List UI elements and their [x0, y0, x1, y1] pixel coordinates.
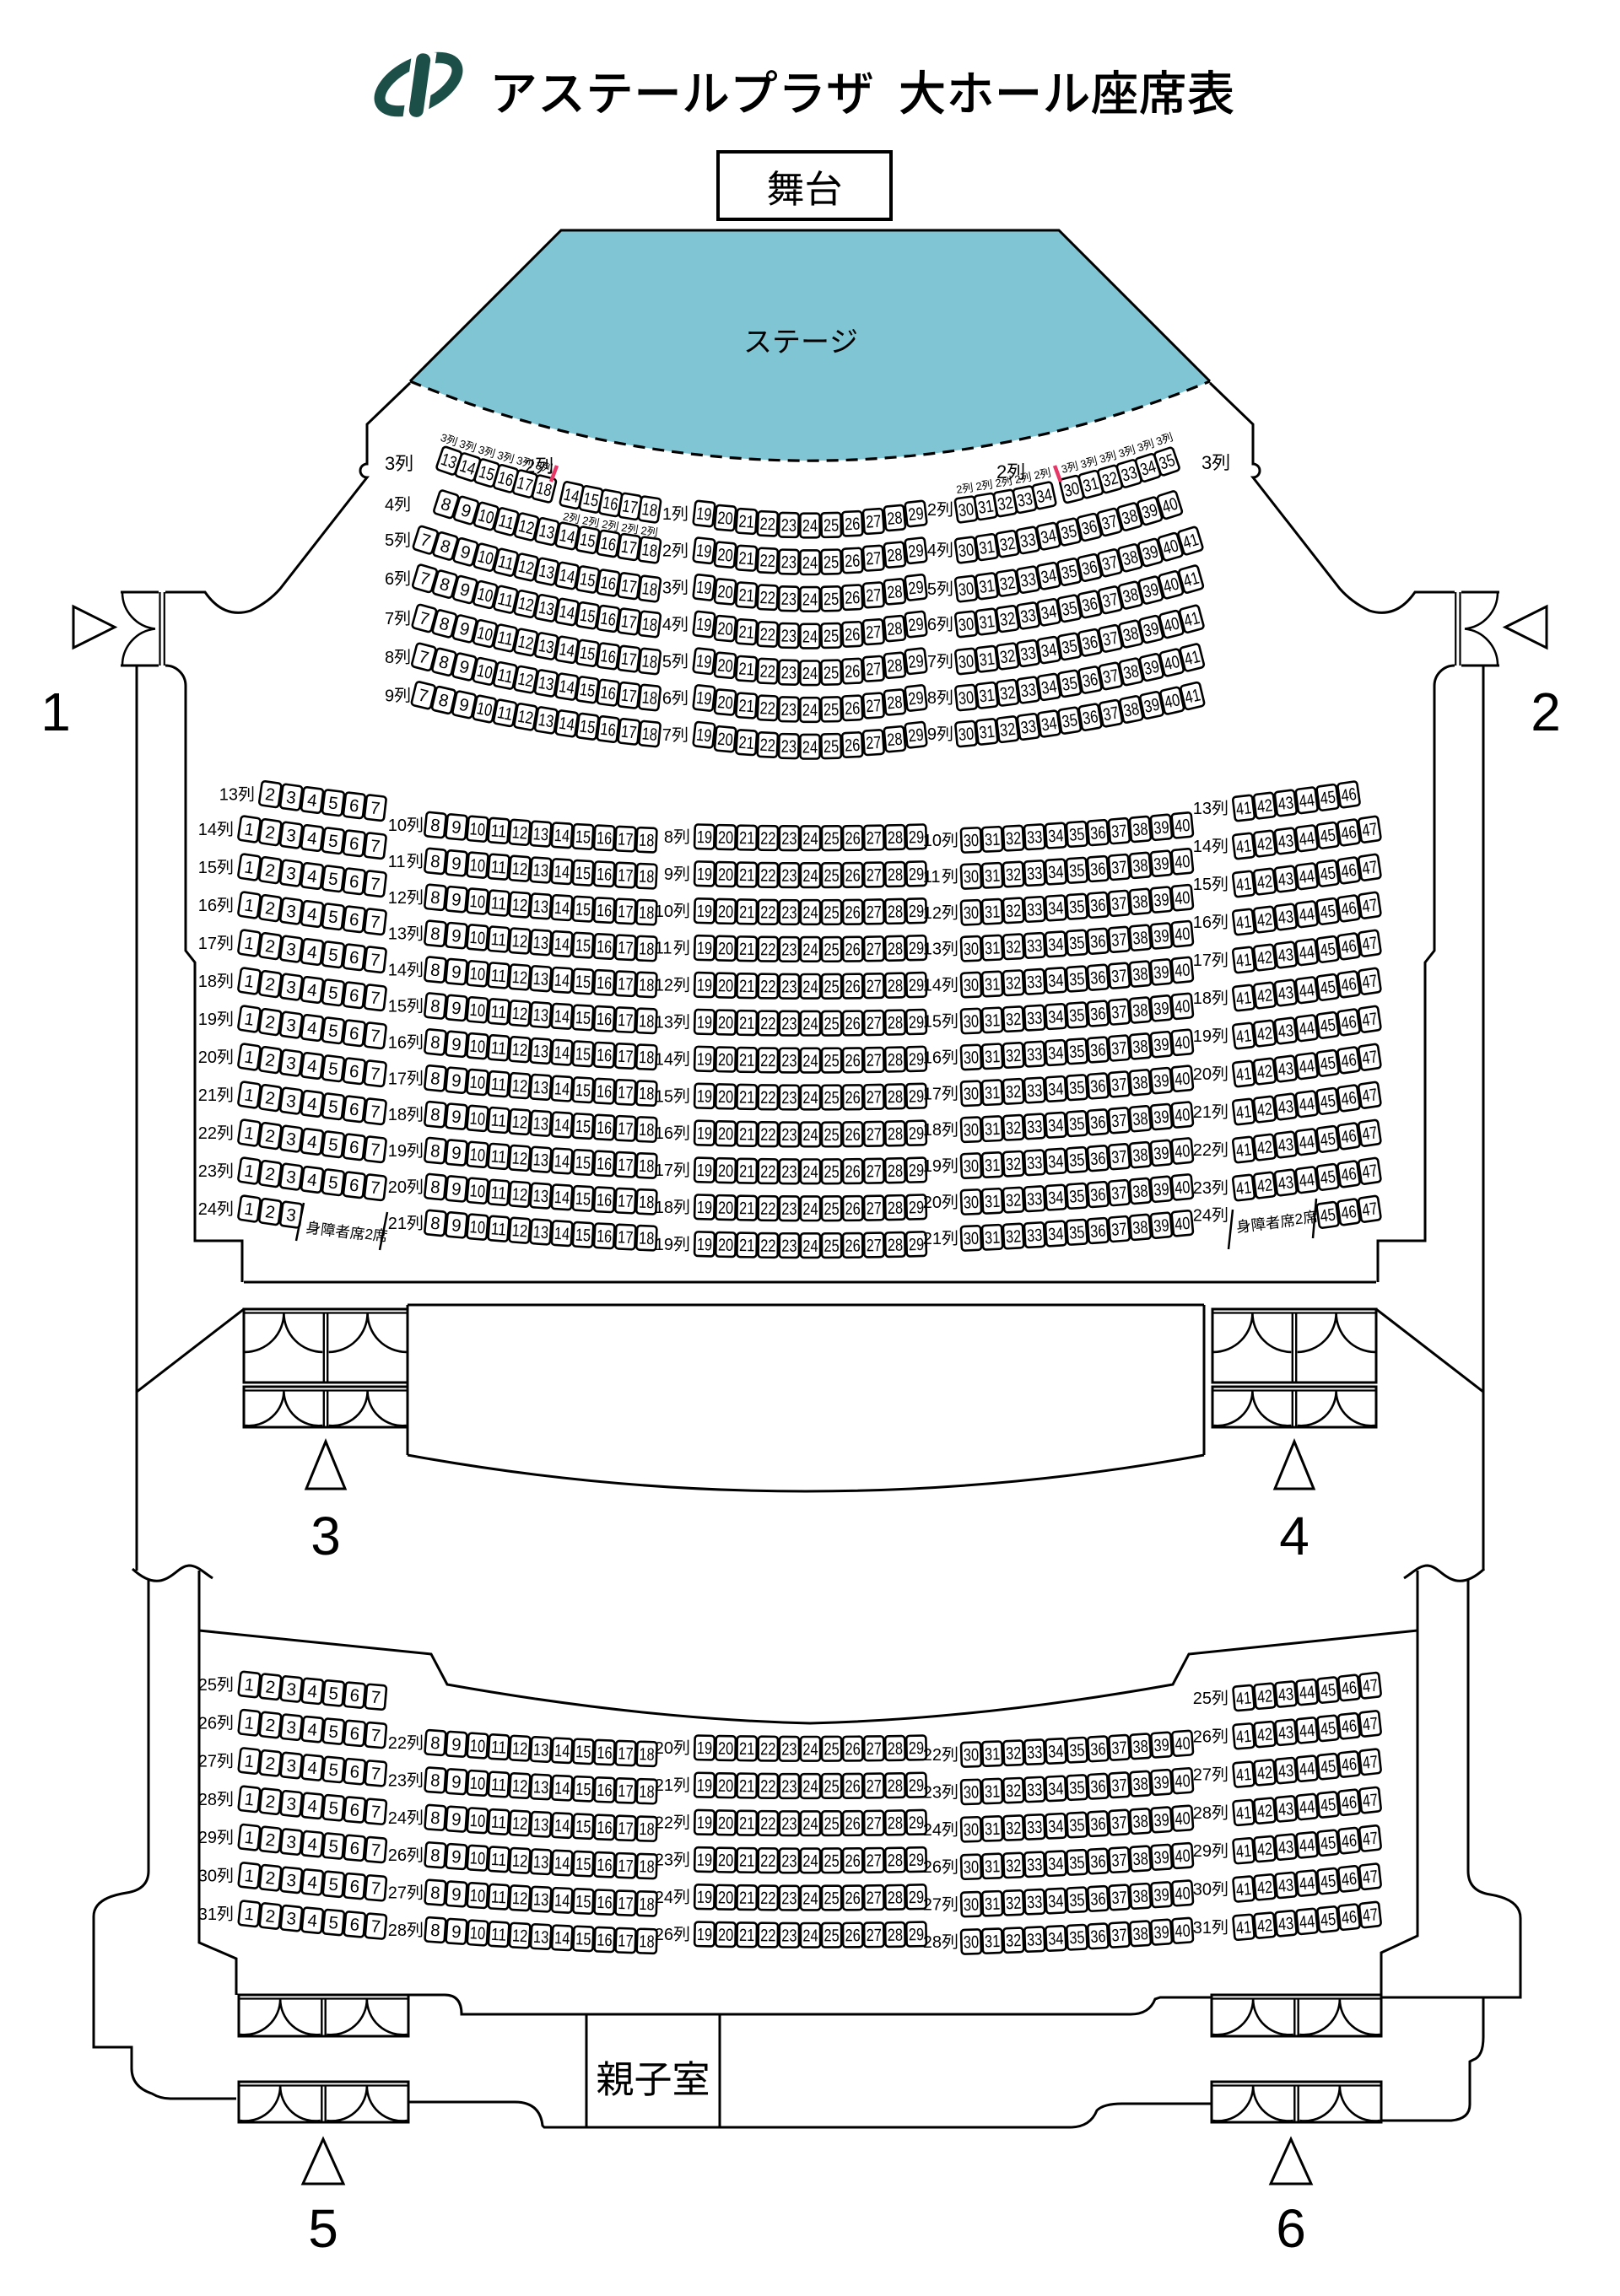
svg-text:13: 13: [532, 1186, 549, 1206]
svg-text:8: 8: [429, 1883, 440, 1903]
svg-text:5: 5: [927, 580, 937, 599]
svg-text:46: 46: [1341, 1830, 1358, 1851]
svg-text:4: 4: [307, 1796, 319, 1816]
svg-text:29: 29: [909, 1851, 925, 1870]
svg-text:40: 40: [1174, 996, 1191, 1017]
svg-text:5: 5: [328, 1836, 340, 1857]
svg-text:44: 44: [1299, 1759, 1315, 1780]
svg-text:10: 10: [469, 1811, 486, 1831]
svg-text:25: 25: [823, 866, 839, 886]
svg-text:31: 31: [984, 1083, 1000, 1103]
svg-text:22: 22: [760, 940, 775, 959]
svg-text:34: 34: [1048, 1007, 1065, 1027]
svg-text:9: 9: [451, 1143, 462, 1163]
svg-text:18: 18: [640, 540, 658, 561]
svg-text:28: 28: [888, 1888, 904, 1907]
svg-text:18: 18: [639, 1120, 655, 1140]
svg-text:38: 38: [1131, 855, 1148, 876]
svg-text:45: 45: [1320, 1910, 1336, 1931]
svg-text:22: 22: [759, 698, 775, 719]
svg-text:36: 36: [1089, 1185, 1106, 1205]
svg-text:33: 33: [1027, 1818, 1043, 1838]
svg-text:27: 27: [867, 1776, 882, 1796]
svg-text:36: 36: [1090, 1851, 1106, 1872]
svg-text:25: 25: [823, 1162, 839, 1182]
svg-text:23: 23: [781, 1014, 796, 1033]
svg-text:17: 17: [618, 1931, 634, 1951]
svg-text:14: 14: [554, 1778, 570, 1798]
svg-text:21: 21: [738, 659, 755, 679]
svg-text:26: 26: [845, 1739, 861, 1759]
svg-text:24: 24: [802, 516, 818, 536]
svg-text:8: 8: [429, 1105, 441, 1125]
svg-text:19: 19: [697, 827, 713, 847]
svg-text:34: 34: [1048, 1817, 1064, 1837]
svg-text:8: 8: [927, 689, 937, 708]
svg-text:16: 16: [596, 1081, 612, 1102]
svg-text:20: 20: [716, 619, 733, 640]
svg-text:19: 19: [697, 1888, 713, 1907]
svg-text:35: 35: [1068, 897, 1085, 917]
svg-text:23: 23: [781, 552, 797, 572]
svg-text:40: 40: [1174, 1733, 1191, 1754]
svg-text:42: 42: [1256, 1916, 1273, 1937]
svg-text:25: 25: [823, 1051, 839, 1070]
svg-text:8: 8: [664, 828, 673, 847]
svg-text:35: 35: [1068, 933, 1085, 953]
svg-text:42: 42: [1256, 985, 1274, 1006]
svg-text:46: 46: [1341, 1907, 1358, 1928]
svg-text:6: 6: [349, 1800, 360, 1820]
svg-text:2: 2: [265, 1830, 277, 1851]
svg-text:13: 13: [532, 1815, 548, 1835]
svg-text:23: 23: [781, 1162, 796, 1182]
svg-text:32: 32: [998, 573, 1017, 595]
svg-text:25: 25: [823, 940, 839, 960]
svg-text:11: 11: [490, 1038, 507, 1059]
svg-text:19: 19: [695, 725, 713, 746]
svg-text:41: 41: [1235, 1727, 1252, 1747]
svg-text:28: 28: [388, 1921, 407, 1940]
svg-text:13: 13: [537, 673, 555, 695]
svg-text:35: 35: [1068, 1186, 1085, 1206]
svg-text:33: 33: [1026, 1117, 1043, 1137]
svg-text:26: 26: [845, 588, 861, 608]
svg-text:42: 42: [1256, 1099, 1274, 1120]
svg-text:18: 18: [655, 1199, 673, 1217]
svg-text:28: 28: [198, 1791, 217, 1809]
svg-text:26: 26: [845, 736, 861, 756]
svg-text:36: 36: [1081, 707, 1099, 729]
svg-text:40: 40: [1174, 1069, 1191, 1090]
svg-text:9: 9: [451, 890, 462, 910]
svg-text:28: 28: [888, 1926, 904, 1945]
svg-text:26: 26: [845, 977, 860, 996]
svg-text:30: 30: [198, 1868, 217, 1886]
svg-text:18: 18: [639, 975, 655, 995]
svg-text:18: 18: [639, 1857, 655, 1877]
svg-text:8: 8: [429, 1771, 440, 1791]
svg-text:30: 30: [963, 1084, 979, 1104]
svg-text:21: 21: [739, 1851, 754, 1870]
svg-text:22: 22: [760, 1088, 775, 1108]
svg-text:42: 42: [1256, 1878, 1273, 1899]
svg-text:17: 17: [618, 1155, 634, 1175]
svg-text:27: 27: [867, 1199, 883, 1218]
svg-text:12: 12: [511, 1926, 527, 1946]
svg-text:33: 33: [1019, 717, 1037, 738]
svg-text:23: 23: [781, 977, 796, 996]
svg-text:4: 4: [307, 1835, 319, 1855]
svg-text:45: 45: [1319, 1091, 1336, 1112]
svg-text:17: 17: [620, 649, 638, 670]
svg-text:8: 8: [429, 1178, 441, 1198]
svg-text:6: 6: [349, 1762, 360, 1782]
svg-text:11: 11: [490, 966, 507, 986]
svg-text:42: 42: [1256, 833, 1274, 854]
svg-text:32: 32: [1006, 1931, 1022, 1951]
svg-text:29: 29: [909, 1738, 925, 1758]
svg-text:24: 24: [802, 1014, 818, 1033]
svg-text:21: 21: [738, 548, 755, 569]
svg-text:26: 26: [845, 1889, 861, 1908]
svg-text:24: 24: [802, 829, 818, 849]
svg-text:35: 35: [1068, 1151, 1085, 1171]
svg-text:10: 10: [469, 1145, 486, 1165]
svg-text:32: 32: [1005, 1046, 1021, 1066]
svg-text:9: 9: [451, 817, 462, 838]
svg-text:24: 24: [802, 1889, 818, 1908]
svg-text:11: 11: [490, 1002, 507, 1022]
svg-text:34: 34: [1048, 826, 1065, 846]
svg-text:12: 12: [923, 904, 942, 923]
svg-text:42: 42: [1256, 871, 1274, 892]
svg-text:15: 15: [575, 1008, 591, 1028]
svg-text:29: 29: [907, 541, 925, 562]
svg-text:23: 23: [781, 1851, 796, 1871]
svg-text:37: 37: [1111, 1776, 1128, 1796]
svg-text:19: 19: [697, 1198, 713, 1217]
svg-text:19: 19: [923, 1157, 942, 1176]
svg-text:21: 21: [739, 865, 755, 885]
svg-text:31: 31: [985, 1932, 1001, 1952]
svg-text:23: 23: [781, 903, 796, 923]
svg-text:44: 44: [1298, 1094, 1315, 1115]
svg-text:39: 39: [1153, 890, 1169, 911]
svg-text:5: 5: [328, 1760, 340, 1781]
svg-text:14: 14: [554, 1853, 570, 1873]
svg-text:18: 18: [640, 579, 658, 600]
svg-text:28: 28: [888, 1851, 904, 1870]
svg-text:16: 16: [596, 973, 612, 994]
svg-text:24: 24: [802, 1777, 818, 1797]
svg-text:3: 3: [285, 1679, 297, 1700]
svg-text:8: 8: [429, 1846, 440, 1866]
svg-text:7: 7: [927, 653, 937, 671]
svg-text:32: 32: [999, 720, 1017, 741]
svg-text:23: 23: [781, 515, 797, 535]
svg-text:18: 18: [639, 1782, 655, 1803]
svg-text:26: 26: [198, 1714, 217, 1733]
svg-text:27: 27: [867, 1051, 883, 1070]
svg-text:14: 14: [558, 714, 575, 735]
svg-text:24: 24: [802, 553, 818, 573]
svg-text:22: 22: [759, 551, 775, 571]
svg-text:26: 26: [1193, 1727, 1212, 1746]
svg-text:10: 10: [469, 1923, 486, 1943]
svg-text:24: 24: [802, 1199, 818, 1219]
svg-text:33: 33: [1026, 1044, 1043, 1064]
svg-text:39: 39: [1153, 1810, 1170, 1830]
svg-text:41: 41: [1235, 1879, 1252, 1900]
svg-text:16: 16: [596, 1154, 612, 1174]
svg-text:33: 33: [1026, 1226, 1043, 1246]
svg-text:24: 24: [388, 1809, 407, 1828]
svg-text:4: 4: [927, 542, 937, 560]
svg-text:37: 37: [1110, 1111, 1127, 1131]
svg-text:15: 15: [575, 1153, 591, 1173]
svg-text:27: 27: [867, 903, 883, 922]
svg-text:30: 30: [963, 1120, 979, 1140]
svg-text:16: 16: [596, 1226, 612, 1247]
svg-text:45: 45: [1319, 787, 1336, 808]
svg-text:45: 45: [1319, 1167, 1336, 1188]
svg-text:18: 18: [923, 1121, 942, 1140]
svg-text:37: 37: [1110, 1219, 1127, 1239]
svg-text:27: 27: [865, 733, 882, 753]
svg-text:29: 29: [909, 865, 925, 884]
svg-text:4: 4: [307, 1873, 319, 1893]
svg-text:12: 12: [511, 1040, 528, 1060]
svg-text:44: 44: [1298, 904, 1315, 925]
svg-text:8: 8: [429, 1808, 440, 1829]
svg-text:2: 2: [265, 1677, 277, 1697]
svg-text:34: 34: [1048, 1854, 1064, 1874]
svg-text:19: 19: [695, 578, 713, 599]
svg-text:20: 20: [718, 1926, 734, 1945]
svg-text:32: 32: [1005, 828, 1021, 849]
svg-text:32: 32: [1005, 1010, 1021, 1030]
svg-text:33: 33: [1027, 1930, 1043, 1950]
svg-text:11: 11: [490, 1775, 507, 1795]
svg-text:38: 38: [1132, 1737, 1149, 1757]
svg-text:38: 38: [1131, 1145, 1148, 1166]
svg-text:32: 32: [1006, 1894, 1022, 1914]
svg-text:14: 14: [554, 1928, 570, 1948]
svg-text:31: 31: [984, 1011, 1000, 1031]
svg-text:5: 5: [328, 1684, 340, 1704]
svg-text:7: 7: [370, 1916, 381, 1937]
svg-text:43: 43: [1277, 1760, 1294, 1781]
svg-text:42: 42: [1256, 1137, 1274, 1158]
svg-text:28: 28: [888, 902, 904, 921]
svg-text:10: 10: [469, 1217, 486, 1237]
svg-text:17: 17: [618, 1781, 634, 1802]
svg-text:10: 10: [469, 1108, 486, 1129]
svg-text:22: 22: [760, 1125, 775, 1145]
svg-text:31: 31: [978, 537, 996, 558]
svg-text:43: 43: [1277, 1097, 1294, 1118]
svg-text:42: 42: [1256, 1839, 1273, 1860]
svg-text:26: 26: [845, 829, 860, 849]
svg-text:25: 25: [823, 515, 840, 535]
svg-text:40: 40: [1174, 1214, 1191, 1235]
svg-text:45: 45: [1320, 1680, 1336, 1701]
svg-text:25: 25: [823, 1199, 839, 1219]
svg-text:26: 26: [845, 1926, 861, 1945]
svg-text:43: 43: [1277, 1722, 1294, 1744]
svg-text:30: 30: [964, 1745, 980, 1765]
svg-text:46: 46: [1340, 974, 1358, 995]
svg-text:38: 38: [1131, 1181, 1148, 1201]
svg-text:27: 27: [867, 865, 883, 885]
svg-text:44: 44: [1298, 1170, 1315, 1191]
svg-text:16: 16: [597, 1893, 613, 1913]
svg-text:22: 22: [760, 1237, 775, 1256]
svg-text:30: 30: [963, 975, 979, 995]
svg-text:35: 35: [1068, 860, 1085, 881]
svg-text:43: 43: [1277, 983, 1294, 1004]
svg-text:6: 6: [1276, 2198, 1306, 2259]
svg-text:16: 16: [596, 901, 612, 921]
svg-text:27: 27: [198, 1753, 217, 1771]
svg-text:47: 47: [1361, 1161, 1379, 1182]
svg-text:31: 31: [198, 1905, 217, 1924]
svg-text:4: 4: [307, 1720, 319, 1740]
svg-text:46: 46: [1340, 1012, 1358, 1033]
svg-text:23: 23: [198, 1162, 217, 1181]
svg-text:17: 17: [618, 1119, 634, 1140]
svg-text:46: 46: [1341, 1869, 1358, 1890]
svg-text:18: 18: [640, 499, 658, 520]
svg-text:11: 11: [490, 1146, 507, 1167]
svg-text:15: 15: [575, 1225, 591, 1245]
svg-text:28: 28: [888, 939, 904, 958]
svg-text:27: 27: [867, 1926, 882, 1945]
svg-text:28: 28: [923, 1933, 942, 1952]
svg-text:47: 47: [1361, 933, 1379, 954]
svg-text:10: 10: [469, 892, 486, 912]
svg-text:22: 22: [759, 736, 775, 756]
svg-text:32: 32: [1005, 901, 1021, 921]
svg-text:2: 2: [265, 1868, 277, 1889]
svg-text:8: 8: [429, 816, 441, 836]
svg-text:10: 10: [388, 817, 407, 835]
svg-text:31: 31: [984, 1119, 1000, 1140]
svg-text:43: 43: [1277, 1021, 1294, 1042]
svg-text:28: 28: [886, 655, 903, 676]
svg-text:29: 29: [909, 1012, 925, 1032]
svg-text:30: 30: [964, 1932, 980, 1953]
svg-text:27: 27: [867, 1161, 883, 1181]
svg-text:20: 20: [718, 1851, 734, 1870]
svg-text:38: 38: [1131, 1109, 1148, 1129]
svg-text:47: 47: [1361, 819, 1379, 840]
svg-text:16: 16: [599, 608, 617, 629]
svg-text:19: 19: [388, 1142, 407, 1161]
svg-text:26: 26: [845, 661, 861, 682]
svg-text:11: 11: [490, 1075, 507, 1095]
svg-text:19: 19: [697, 1925, 713, 1944]
svg-text:35: 35: [1061, 673, 1079, 695]
svg-text:19: 19: [697, 1124, 713, 1143]
svg-text:19: 19: [695, 688, 713, 709]
svg-text:10: 10: [469, 1000, 486, 1021]
svg-text:40: 40: [1174, 852, 1191, 873]
svg-text:11: 11: [490, 893, 507, 914]
svg-text:19: 19: [697, 1049, 713, 1069]
svg-text:22: 22: [760, 1739, 775, 1759]
svg-text:26: 26: [845, 866, 860, 886]
svg-text:34: 34: [1048, 935, 1065, 955]
svg-text:14: 14: [198, 821, 217, 839]
svg-text:45: 45: [1319, 1205, 1336, 1226]
svg-text:46: 46: [1341, 1716, 1358, 1737]
svg-text:25: 25: [823, 1777, 839, 1797]
svg-text:20: 20: [716, 545, 733, 566]
svg-text:13: 13: [532, 1113, 549, 1134]
svg-text:45: 45: [1319, 1053, 1336, 1074]
svg-text:12: 12: [511, 1889, 527, 1909]
svg-text:37: 37: [1110, 857, 1127, 877]
svg-text:33: 33: [1026, 827, 1043, 848]
svg-text:25: 25: [198, 1676, 217, 1695]
svg-text:21: 21: [739, 903, 755, 922]
svg-text:25: 25: [823, 663, 840, 682]
svg-text:33: 33: [1019, 643, 1037, 664]
svg-text:14: 14: [553, 826, 570, 846]
svg-text:30: 30: [963, 1229, 979, 1249]
svg-text:18: 18: [639, 1932, 655, 1952]
svg-text:8: 8: [429, 1032, 441, 1053]
svg-text:43: 43: [1277, 1837, 1294, 1858]
svg-text:41: 41: [1235, 912, 1253, 933]
svg-text:23: 23: [781, 1088, 796, 1108]
svg-text:25: 25: [823, 1851, 839, 1871]
svg-text:41: 41: [1235, 1178, 1253, 1199]
svg-text:17: 17: [618, 1227, 634, 1248]
svg-text:17: 17: [618, 1744, 634, 1764]
svg-text:31: 31: [984, 938, 1000, 958]
svg-text:30: 30: [963, 1193, 979, 1213]
svg-text:41: 41: [1235, 1064, 1253, 1085]
svg-text:12: 12: [511, 1113, 528, 1133]
svg-text:27: 27: [867, 940, 883, 959]
svg-text:8: 8: [429, 1921, 440, 1941]
svg-text:45: 45: [1319, 1129, 1336, 1150]
svg-text:27: 27: [923, 1896, 942, 1915]
svg-text:15: 15: [575, 1081, 591, 1101]
svg-text:46: 46: [1341, 1678, 1358, 1699]
svg-text:14: 14: [553, 935, 570, 955]
svg-text:28: 28: [886, 508, 903, 529]
svg-text:30: 30: [963, 903, 979, 924]
svg-text:37: 37: [1110, 1038, 1127, 1059]
svg-text:29: 29: [909, 1776, 925, 1795]
svg-text:35: 35: [1069, 1927, 1085, 1948]
svg-text:47: 47: [1361, 1123, 1379, 1144]
svg-text:34: 34: [1040, 714, 1058, 735]
svg-text:38: 38: [1131, 1217, 1148, 1237]
svg-text:27: 27: [867, 1889, 882, 1908]
svg-text:29: 29: [909, 1124, 925, 1143]
svg-text:42: 42: [1256, 1023, 1274, 1044]
svg-text:28: 28: [886, 730, 903, 751]
svg-text:17: 17: [198, 935, 217, 953]
svg-text:14: 14: [553, 1188, 570, 1208]
svg-text:20: 20: [198, 1048, 217, 1067]
svg-text:33: 33: [1026, 1153, 1043, 1173]
